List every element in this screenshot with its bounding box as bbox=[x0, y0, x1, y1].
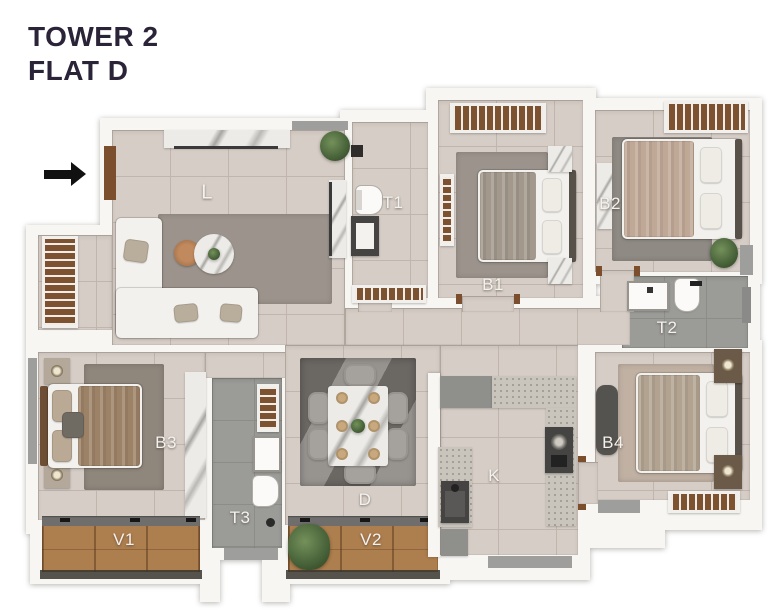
room-label-veranda2: V2 bbox=[360, 530, 382, 550]
room-label-toilet2: T2 bbox=[657, 318, 678, 338]
room-label-bedroom1: B1 bbox=[482, 275, 504, 295]
room-label-bedroom2: B2 bbox=[599, 194, 621, 214]
room-label-veranda1: V1 bbox=[113, 530, 135, 550]
labels-layer: L T1 B1 B2 T2 B3 V1 T3 D V2 K B4 bbox=[0, 0, 768, 613]
room-label-kitchen: K bbox=[488, 466, 500, 486]
floor-plan: TOWER 2 FLAT D bbox=[0, 0, 768, 613]
room-label-bedroom4: B4 bbox=[602, 433, 624, 453]
room-label-toilet1: T1 bbox=[383, 193, 404, 213]
room-label-bedroom3: B3 bbox=[155, 433, 177, 453]
room-label-dining: D bbox=[359, 490, 372, 510]
room-label-toilet3: T3 bbox=[230, 508, 251, 528]
room-label-living: L bbox=[201, 182, 213, 205]
